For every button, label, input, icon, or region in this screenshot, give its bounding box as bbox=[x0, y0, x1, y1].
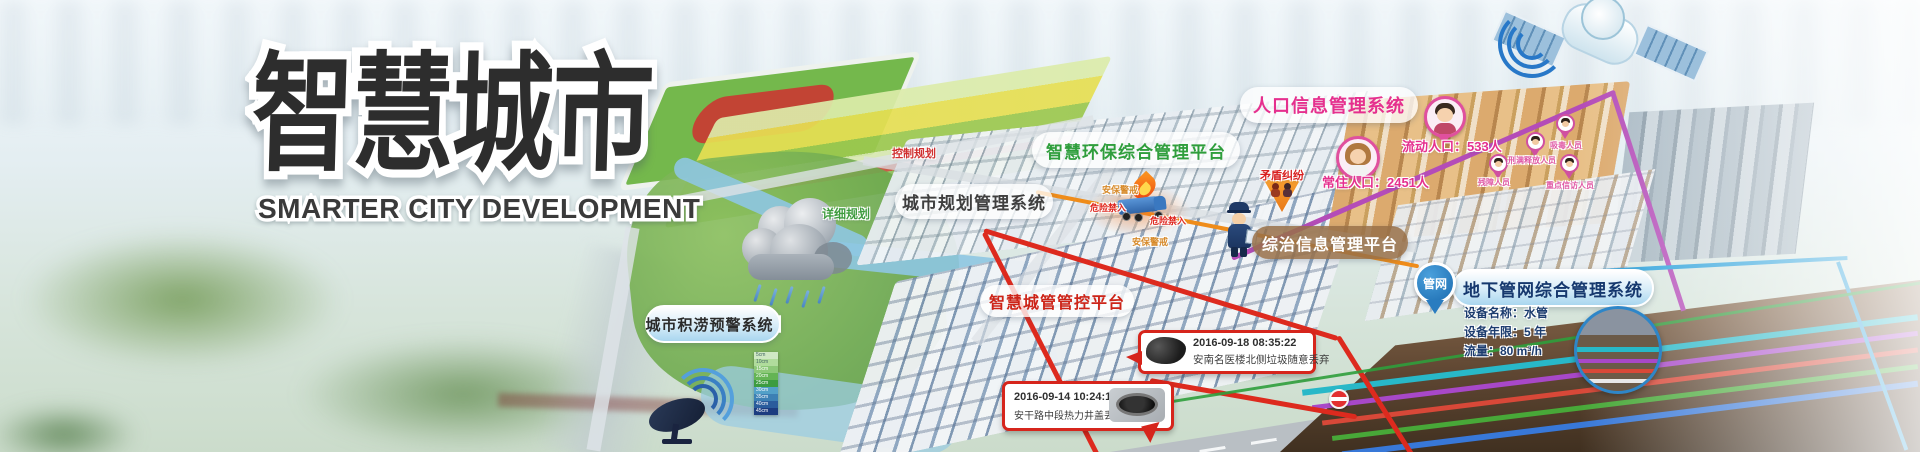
control-plan-tag: 控制规划 bbox=[892, 145, 936, 161]
pipe-network-text: 地下管网综合管理系统 bbox=[1463, 276, 1643, 301]
released-person-pin bbox=[1526, 132, 1545, 151]
label-governance-platform: 综治信息管理平台 bbox=[1252, 226, 1408, 259]
label-city-management-platform: 智慧城管管控平台 bbox=[980, 285, 1134, 317]
callout-tail bbox=[1141, 422, 1164, 444]
pipe-pin-text: 管网 bbox=[1423, 275, 1447, 292]
no-entry-sign-icon bbox=[1329, 389, 1349, 409]
label-city-planning-system: 城市规划管理系统 bbox=[895, 184, 1053, 219]
city-management-text: 智慧城管管控平台 bbox=[989, 289, 1125, 313]
disabled-person-pin bbox=[1489, 154, 1508, 173]
disabled-person-label: 残障人员 bbox=[1478, 177, 1510, 188]
pipe-network-pin: 管网 bbox=[1414, 262, 1456, 316]
released-person-label: 刑满释放人员 bbox=[1508, 155, 1556, 166]
flood-depth-legend: 5cm 10cm 15cm 20cm 25cm 30cm 35cm 40cm 4… bbox=[754, 352, 778, 415]
pipe-photo bbox=[1574, 306, 1662, 394]
drug-person-pin bbox=[1556, 114, 1575, 133]
police-officer-icon bbox=[1226, 202, 1256, 258]
legend-step: 30cm bbox=[754, 387, 778, 394]
garbage-pile-image bbox=[1146, 337, 1186, 364]
page-title: 智慧城市 智慧城市 bbox=[252, 48, 652, 183]
incident-time: 2016-09-18 08:35:22 bbox=[1193, 337, 1296, 349]
petition-person-pin bbox=[1560, 154, 1579, 173]
floating-population-text: 流动人口：533人 bbox=[1402, 136, 1502, 155]
callout-tail bbox=[1126, 351, 1142, 365]
satellite-signal-icon bbox=[1498, 10, 1566, 78]
label-population-system: 人口信息管理系统 bbox=[1240, 87, 1418, 123]
legend-step: 40cm bbox=[754, 401, 778, 408]
label-pipe-network-system: 地下管网综合管理系统 bbox=[1452, 269, 1654, 307]
legend-step: 20cm bbox=[754, 373, 778, 380]
flood-warning-text: 城市积涝预警系统 bbox=[646, 314, 774, 335]
guard-tag: 安保警戒 bbox=[1102, 183, 1138, 196]
petition-person-label: 重点信访人员 bbox=[1546, 180, 1594, 191]
incident-time: 2016-09-14 10:24:15 bbox=[1014, 391, 1117, 403]
danger-tag: 危险禁入 bbox=[1090, 201, 1126, 214]
pipe-device-age: 设备年限：5 年 bbox=[1464, 323, 1546, 340]
label-flood-warning-system: 城市积涝预警系统 bbox=[645, 305, 781, 343]
city-planning-text: 城市规划管理系统 bbox=[902, 189, 1046, 214]
danger-tag: 危险禁入 bbox=[1150, 214, 1186, 227]
conflict-marker-icon bbox=[1264, 180, 1300, 214]
subtitle-text: SMARTER CITY DEVELOPMENT bbox=[258, 193, 700, 225]
incident-callout-manhole: 2016-09-14 10:24:15 安干路中段热力井盖丢失 bbox=[1002, 381, 1174, 431]
resident-population-text: 常住人口：2451人 bbox=[1322, 172, 1429, 191]
governance-platform-text: 综治信息管理平台 bbox=[1262, 231, 1398, 255]
detail-plan-tag: 详细规划 bbox=[822, 205, 870, 222]
label-environment-platform: 智慧环保综合管理平台 bbox=[1032, 132, 1240, 168]
drug-person-label: 吸毒人员 bbox=[1550, 140, 1582, 151]
environment-platform-text: 智慧环保综合管理平台 bbox=[1046, 138, 1226, 163]
legend-step: 25cm bbox=[754, 380, 778, 387]
manhole-image bbox=[1109, 388, 1165, 422]
water-gauge-icon bbox=[779, 315, 781, 333]
legend-step: 45cm bbox=[754, 408, 778, 415]
smart-city-banner: 5cm 10cm 15cm 20cm 25cm 30cm 35cm 40cm 4… bbox=[0, 0, 1920, 452]
page-subtitle: SMARTER CITY DEVELOPMENT SMARTER CITY DE… bbox=[258, 193, 700, 225]
legend-step: 10cm bbox=[754, 359, 778, 366]
incident-desc: 安干路中段热力井盖丢失 bbox=[1014, 407, 1124, 422]
incident-callout-garbage: 2016-09-18 08:35:22 安南名医楼北侧垃圾随意丢弃 bbox=[1138, 330, 1316, 374]
pipe-flow: 流量：80 m³/h bbox=[1464, 342, 1542, 359]
legend-step: 5cm bbox=[754, 352, 778, 359]
population-system-text: 人口信息管理系统 bbox=[1253, 92, 1405, 118]
pipe-device-name: 设备名称：水管 bbox=[1464, 304, 1548, 321]
conflict-label: 矛盾纠纷 bbox=[1260, 167, 1304, 183]
legend-step: 15cm bbox=[754, 366, 778, 373]
guard-tag: 安保警戒 bbox=[1132, 235, 1168, 248]
legend-step: 35cm bbox=[754, 394, 778, 401]
title-text: 智慧城市 bbox=[250, 48, 654, 183]
incident-desc: 安南名医楼北侧垃圾随意丢弃 bbox=[1193, 352, 1330, 367]
